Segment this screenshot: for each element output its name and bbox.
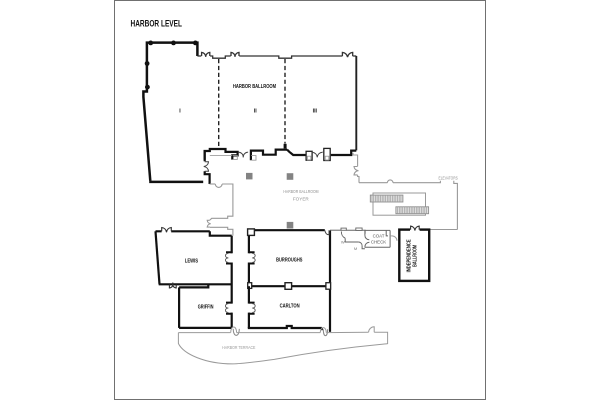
svg-text:FOYER: FOYER [293,196,310,201]
svg-text:HARBOR LEVEL: HARBOR LEVEL [131,18,183,28]
svg-text:BALLROOM: BALLROOM [413,245,419,267]
svg-text:LEWIS: LEWIS [185,258,199,264]
svg-text:GRIFFIN: GRIFFIN [198,304,214,310]
svg-text:W: W [341,239,345,244]
svg-text:HARBOR TERRACE: HARBOR TERRACE [222,345,255,350]
svg-text:BURROUGHS: BURROUGHS [276,257,303,263]
svg-text:M: M [354,246,357,251]
svg-text:III: III [313,108,318,114]
svg-text:HARBOR BALLROOM: HARBOR BALLROOM [283,189,318,194]
svg-text:HARBOR BALLROOM: HARBOR BALLROOM [233,84,276,90]
svg-text:ELEVATORS: ELEVATORS [439,176,458,181]
svg-text:CARLTON: CARLTON [280,303,300,309]
svg-text:CHECK: CHECK [371,240,386,245]
svg-text:COAT: COAT [373,234,385,239]
